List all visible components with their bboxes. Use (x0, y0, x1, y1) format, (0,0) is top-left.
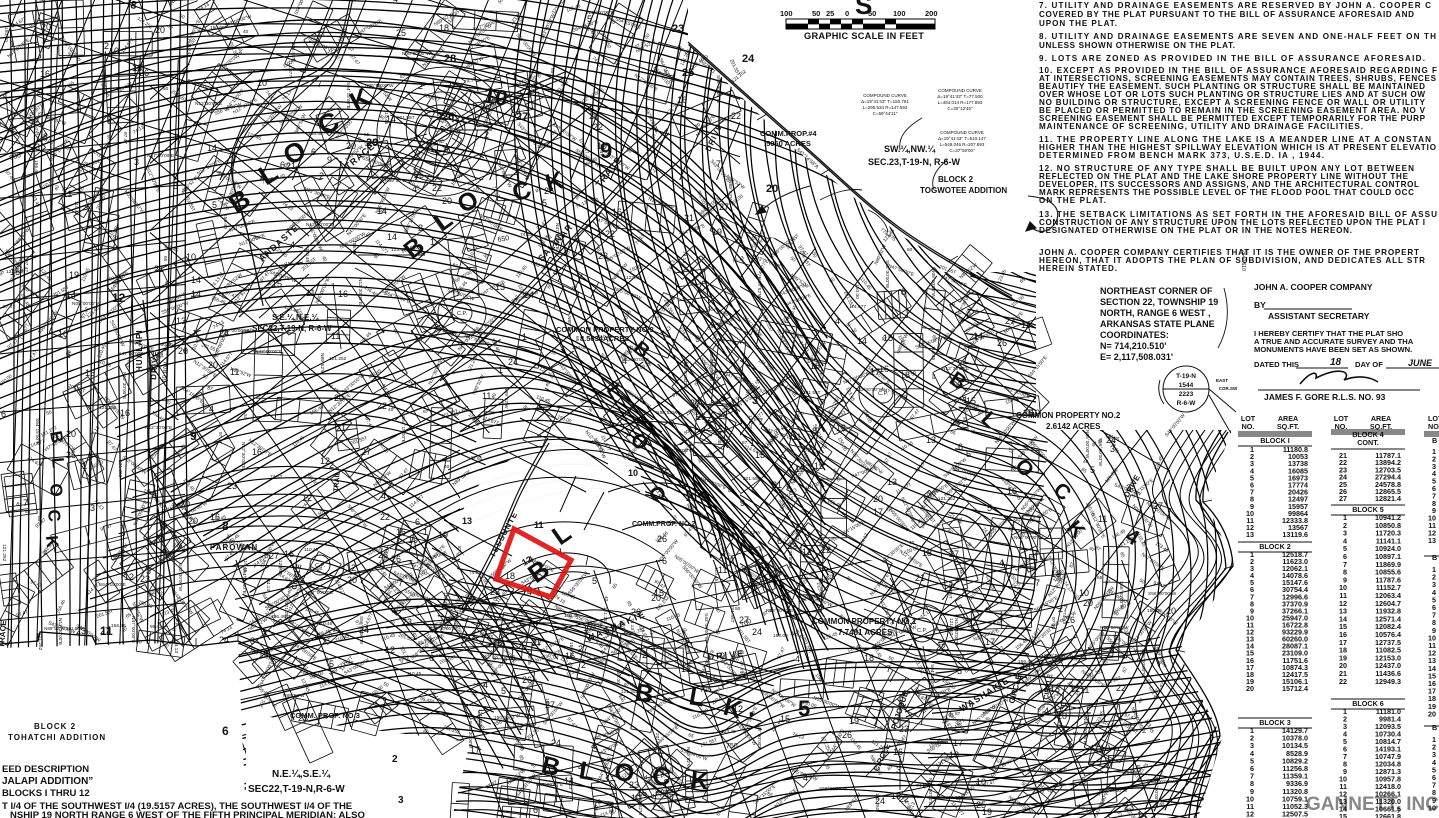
svg-text:97.47: 97.47 (1007, 441, 1013, 453)
svg-text:N12°30'00"E: N12°30'00"E (121, 372, 127, 399)
svg-text:5: 5 (1136, 764, 1141, 774)
svg-text:201.55T: 201.55T (743, 476, 761, 482)
svg-text:6: 6 (66, 350, 71, 360)
svg-text:8: 8 (162, 521, 167, 531)
svg-text:S56°00'00"W: S56°00'00"W (715, 75, 721, 104)
svg-text:20: 20 (690, 398, 700, 408)
svg-text:65: 65 (1097, 575, 1103, 581)
svg-text:HUALAPI: HUALAPI (135, 329, 144, 372)
svg-text:12821.4: 12821.4 (1375, 494, 1401, 503)
svg-text:N89°52'W: N89°52'W (656, 410, 678, 416)
svg-text:N47°00'00"E: N47°00'00"E (756, 723, 762, 750)
svg-text:12: 12 (124, 572, 134, 582)
svg-text:23: 23 (598, 251, 608, 261)
svg-text:65: 65 (25, 509, 31, 515)
svg-text:COMMON PROPERTY NO.2: COMMON PROPERTY NO.2 (1016, 411, 1121, 420)
svg-text:17: 17 (470, 745, 480, 755)
svg-text:25: 25 (396, 28, 406, 38)
svg-text:C.P.: C.P. (315, 563, 325, 569)
svg-text:18: 18 (922, 548, 932, 558)
svg-text:22: 22 (377, 401, 387, 411)
svg-text:24: 24 (359, 625, 369, 635)
svg-text:7: 7 (758, 417, 763, 427)
svg-text:156.46: 156.46 (537, 144, 552, 150)
svg-text:65: 65 (162, 256, 168, 262)
svg-text:2.6142 ACRES: 2.6142 ACRES (1046, 422, 1101, 431)
svg-text:4: 4 (553, 267, 558, 277)
svg-text:4: 4 (209, 404, 214, 414)
svg-text:N89°52'W: N89°52'W (756, 277, 762, 299)
svg-text:COMM.PROP.#4: COMM.PROP.#4 (760, 129, 817, 138)
svg-text:GANNETT, INC: GANNETT, INC (1306, 794, 1439, 815)
svg-text:5: 5 (165, 280, 170, 290)
svg-text:150.00: 150.00 (222, 214, 228, 229)
svg-text:4: 4 (60, 203, 65, 213)
svg-text:COMM.PROP. NO.2: COMM.PROP. NO.2 (632, 521, 695, 528)
svg-text:4: 4 (1109, 644, 1114, 654)
svg-text:N47°00'00"E: N47°00'00"E (536, 782, 563, 788)
svg-text:50: 50 (930, 374, 936, 380)
svg-text:COMPOUND CURVE: COMPOUND CURVE (863, 93, 907, 98)
svg-text:JUNE: JUNE (1408, 358, 1433, 368)
svg-text:750: 750 (726, 743, 738, 750)
svg-text:14: 14 (387, 232, 397, 242)
svg-text:12: 12 (681, 664, 691, 674)
svg-text:26: 26 (442, 111, 454, 123)
svg-text:4: 4 (483, 680, 488, 690)
svg-text:5: 5 (501, 686, 506, 696)
svg-text:121.252: 121.252 (477, 709, 483, 727)
svg-text:4: 4 (999, 558, 1004, 568)
svg-text:C.P.: C.P. (1042, 711, 1052, 717)
svg-text:121.252: 121.252 (747, 415, 753, 433)
svg-text:121.252: 121.252 (329, 356, 347, 362)
svg-text:15: 15 (755, 450, 765, 460)
svg-text:18: 18 (1330, 357, 1342, 368)
svg-text:10: 10 (109, 46, 119, 56)
svg-text:N05°00'00"W: N05°00'00"W (930, 269, 936, 298)
svg-text:19: 19 (438, 530, 448, 540)
svg-text:3: 3 (784, 315, 789, 325)
svg-text:9: 9 (107, 114, 112, 124)
svg-text:27: 27 (578, 644, 588, 654)
svg-text:N12°30'00"E: N12°30'00"E (145, 425, 172, 431)
svg-text:ARKANSAS STATE PLANE: ARKANSAS STATE PLANE (1100, 319, 1215, 329)
svg-text:22: 22 (1116, 683, 1126, 693)
svg-text:6: 6 (222, 724, 229, 738)
svg-text:725: 725 (700, 687, 712, 694)
svg-text:ON THE PLAT.: ON THE PLAT. (1039, 196, 1106, 205)
svg-text:97.47: 97.47 (624, 682, 636, 688)
svg-text:NORTHEAST CORNER OF: NORTHEAST CORNER OF (1100, 286, 1213, 296)
svg-text:1: 1 (522, 332, 527, 342)
svg-text:19: 19 (982, 807, 992, 817)
svg-text:N12°30'00"E: N12°30'00"E (357, 278, 363, 305)
svg-text:26: 26 (378, 550, 388, 560)
svg-text:20: 20 (41, 22, 51, 32)
svg-text:13: 13 (887, 477, 897, 487)
svg-text:16: 16 (338, 289, 348, 299)
svg-text:SEC22,T-19-N,R-6-W: SEC22,T-19-N,R-6-W (248, 784, 345, 795)
svg-text:17: 17 (953, 738, 963, 748)
svg-text:7: 7 (886, 664, 891, 674)
svg-text:DETERMINED FROM BENCH MARK 373: DETERMINED FROM BENCH MARK 373, U.S.E.D.… (1039, 151, 1324, 160)
svg-text:74.13: 74.13 (469, 570, 481, 576)
svg-text:16: 16 (210, 512, 220, 522)
svg-text:1: 1 (750, 438, 755, 448)
svg-text:JALAPI ADDITION”: JALAPI ADDITION” (2, 776, 93, 787)
svg-text:11: 11 (1098, 514, 1107, 524)
svg-text:18: 18 (1051, 569, 1061, 579)
svg-text:65: 65 (36, 516, 42, 522)
svg-text:N89°52'W: N89°52'W (503, 387, 509, 409)
svg-text:0: 0 (845, 9, 849, 18)
svg-text:COMPOUND CURVE: COMPOUND CURVE (938, 88, 982, 93)
svg-text:21: 21 (531, 637, 541, 647)
svg-text:13: 13 (462, 516, 472, 526)
svg-text:SEC22,T-19-N, R-6-W: SEC22,T-19-N, R-6-W (252, 324, 332, 333)
svg-text:3: 3 (398, 795, 404, 806)
svg-text:N47°00'00"E: N47°00'00"E (1040, 767, 1067, 773)
svg-text:10: 10 (58, 329, 68, 339)
svg-text:24: 24 (752, 627, 762, 637)
svg-text:97.47: 97.47 (122, 132, 128, 144)
svg-text:9: 9 (190, 429, 197, 443)
svg-text:121.252: 121.252 (948, 618, 954, 636)
svg-text:26: 26 (391, 554, 401, 564)
svg-text:6: 6 (958, 442, 963, 452)
svg-text:N89°52'W: N89°52'W (319, 353, 325, 375)
svg-text:N89°52'W: N89°52'W (1044, 653, 1066, 659)
svg-text:4: 4 (444, 143, 449, 153)
svg-text:27: 27 (516, 111, 528, 123)
svg-text:156.46: 156.46 (526, 650, 532, 665)
svg-text:8: 8 (222, 519, 229, 533)
svg-text:201.55T: 201.55T (803, 390, 821, 396)
svg-text:1: 1 (963, 395, 968, 405)
svg-text:150.00: 150.00 (854, 284, 860, 299)
svg-text:8: 8 (812, 426, 817, 436)
svg-text:12: 12 (302, 493, 312, 503)
svg-text:25: 25 (682, 67, 694, 79)
svg-text:SEC.23,T-19-N, R-6-W: SEC.23,T-19-N, R-6-W (868, 157, 961, 167)
svg-text:N47°00'00"E: N47°00'00"E (1082, 717, 1088, 744)
svg-text:99.434: 99.434 (150, 624, 164, 629)
svg-text:1: 1 (498, 365, 503, 375)
svg-text:5: 5 (592, 576, 597, 586)
svg-text:2: 2 (418, 223, 423, 233)
svg-text:40: 40 (1083, 459, 1089, 465)
svg-text:23: 23 (140, 574, 150, 584)
svg-text:10: 10 (619, 212, 629, 222)
svg-text:5: 5 (587, 14, 592, 24)
svg-text:27: 27 (949, 549, 959, 559)
svg-text:150.00: 150.00 (1147, 608, 1162, 614)
svg-text:S64°15'00"E: S64°15'00"E (929, 664, 935, 691)
svg-text:O: O (613, 758, 635, 788)
svg-text:24: 24 (875, 796, 885, 806)
svg-text:B: B (1432, 436, 1437, 445)
svg-text:26: 26 (657, 534, 667, 544)
svg-text:2: 2 (319, 171, 324, 181)
svg-text:2: 2 (392, 754, 398, 765)
svg-text:12949.3: 12949.3 (1375, 677, 1401, 686)
svg-text:N05°00'00"W: N05°00'00"W (1140, 649, 1146, 678)
svg-text:N89°52'W: N89°52'W (385, 178, 407, 184)
svg-text:N05°00'00"W: N05°00'00"W (1084, 430, 1090, 459)
svg-text:21: 21 (915, 573, 925, 583)
svg-text:N05°00'00"W: N05°00'00"W (72, 301, 101, 307)
svg-text:EAST: EAST (1216, 378, 1228, 383)
svg-text:5: 5 (987, 503, 992, 513)
svg-text:26: 26 (522, 675, 532, 685)
svg-text:110.45: 110.45 (304, 248, 310, 263)
svg-text:7: 7 (317, 79, 322, 89)
svg-text:11: 11 (100, 624, 113, 638)
svg-text:13119.6: 13119.6 (1282, 530, 1308, 539)
svg-text:20: 20 (66, 429, 76, 439)
svg-text:C.P.: C.P. (457, 311, 467, 317)
svg-text:E= 2,117,508.031': E= 2,117,508.031' (1100, 352, 1173, 362)
svg-text:97.47: 97.47 (3, 304, 15, 310)
svg-text:3: 3 (615, 57, 620, 67)
svg-text:8. UTILITY AND DRAINAGE EA: 8. UTILITY AND DRAINAGE EASEMENTS ARE SE… (1039, 32, 1436, 41)
svg-text:23: 23 (490, 587, 500, 597)
svg-text:COMMON PROPERTY NO.1: COMMON PROPERTY NO.1 (812, 617, 917, 626)
svg-text:5: 5 (212, 200, 217, 210)
svg-text:14: 14 (66, 290, 76, 300)
svg-text:5: 5 (798, 696, 810, 721)
svg-text:11: 11 (331, 331, 340, 341)
svg-text:19: 19 (408, 535, 418, 545)
svg-text:4: 4 (622, 356, 627, 366)
svg-text:17: 17 (985, 637, 995, 647)
svg-text:13: 13 (1428, 536, 1436, 545)
svg-text:C=37°50'00": C=37°50'00" (949, 148, 975, 153)
svg-text:20: 20 (1083, 598, 1093, 608)
svg-text:1: 1 (423, 527, 428, 537)
svg-text:16: 16 (836, 423, 846, 433)
svg-text:2: 2 (642, 650, 647, 660)
svg-text:50: 50 (477, 456, 483, 462)
svg-text:40: 40 (243, 29, 249, 35)
svg-text:50: 50 (961, 417, 967, 423)
svg-text:COR.SW: COR.SW (1219, 386, 1238, 391)
svg-text:7. UTILITY AND DRAINAGE EA: 7. UTILITY AND DRAINAGE EASEMENTS ARE RE… (1039, 1, 1431, 10)
svg-text:7: 7 (778, 414, 783, 424)
svg-text:8.5634ACRES: 8.5634ACRES (580, 334, 629, 343)
svg-text:N05°00'00"W: N05°00'00"W (365, 83, 394, 89)
svg-text:12: 12 (346, 563, 356, 573)
svg-text:23: 23 (227, 481, 237, 491)
svg-text:110.45: 110.45 (304, 547, 319, 553)
svg-text:L=549.046 R=207.893: L=549.046 R=207.893 (940, 142, 985, 147)
svg-text:DESIGNATED OTHERWISE ON THE PL: DESIGNATED OTHERWISE ON THE PLAT OR IN T… (1039, 226, 1352, 235)
svg-text:5: 5 (591, 29, 596, 39)
svg-text:16: 16 (284, 549, 294, 559)
svg-text:18: 18 (505, 571, 515, 581)
svg-text:201.55T: 201.55T (654, 733, 660, 751)
svg-text:L: L (48, 457, 68, 469)
svg-text:4: 4 (393, 0, 398, 4)
svg-text:MAINTENANCE OF SCREENING, UTIL: MAINTENANCE OF SCREENING, UTILITY AND DR… (1039, 122, 1363, 131)
svg-text:150.00: 150.00 (210, 25, 225, 31)
svg-text:11: 11 (306, 288, 315, 298)
svg-text:27: 27 (1058, 604, 1068, 614)
svg-text:10: 10 (257, 78, 267, 88)
svg-text:110.45: 110.45 (318, 621, 333, 627)
svg-text:5: 5 (329, 659, 334, 669)
svg-text:C.P.: C.P. (878, 391, 888, 397)
svg-text:6: 6 (415, 517, 420, 527)
svg-text:7: 7 (1035, 578, 1040, 588)
svg-text:O: O (46, 483, 66, 498)
svg-text:97.47: 97.47 (105, 135, 111, 147)
svg-text:100: 100 (893, 9, 906, 18)
svg-text:10: 10 (481, 82, 509, 111)
svg-text:N47°00'00"E: N47°00'00"E (255, 349, 282, 355)
svg-text:5: 5 (542, 198, 547, 208)
svg-text:18: 18 (439, 23, 449, 33)
svg-text:14: 14 (1137, 810, 1147, 818)
svg-text:1544: 1544 (1179, 382, 1194, 389)
svg-text:DATED THIS: DATED THIS (1254, 360, 1299, 369)
svg-text:1: 1 (10, 39, 15, 49)
svg-text:19: 19 (814, 461, 824, 471)
svg-text:22: 22 (380, 512, 390, 522)
svg-text:22: 22 (731, 111, 741, 121)
svg-text:Δ=19°41'43" T=77.500: Δ=19°41'43" T=77.500 (937, 94, 983, 99)
svg-text:87: 87 (423, 409, 429, 415)
svg-text:40: 40 (909, 540, 915, 546)
svg-text:6: 6 (311, 147, 316, 157)
svg-text:6: 6 (1, 409, 6, 419)
svg-text:20: 20 (180, 499, 190, 509)
svg-text:HEREIN STATED.: HEREIN STATED. (1039, 264, 1117, 273)
svg-text:65: 65 (436, 653, 442, 659)
svg-text:.5050 ACRES: .5050 ACRES (764, 139, 811, 148)
svg-text:CONT.: CONT. (1357, 438, 1379, 447)
svg-text:BLOCK 2: BLOCK 2 (938, 175, 974, 184)
svg-text:C.P.: C.P. (435, 128, 445, 134)
svg-text:C.P.: C.P. (917, 628, 927, 634)
svg-text:7: 7 (716, 159, 721, 169)
svg-text:6: 6 (662, 556, 667, 566)
svg-text:50: 50 (1080, 654, 1086, 660)
svg-text:17: 17 (873, 507, 883, 517)
svg-text:50: 50 (163, 86, 169, 92)
svg-text:87: 87 (955, 711, 961, 717)
svg-text:GRAPHIC SCALE IN FEET: GRAPHIC SCALE IN FEET (804, 31, 924, 41)
svg-text:SQ.FT.: SQ.FT. (1277, 422, 1299, 431)
svg-text:24: 24 (742, 53, 755, 65)
svg-text:11: 11 (482, 391, 491, 401)
svg-text:74.13: 74.13 (270, 474, 282, 480)
svg-text:121.252: 121.252 (99, 405, 117, 411)
svg-text:16: 16 (252, 447, 262, 457)
svg-text:11: 11 (63, 189, 72, 199)
svg-text:26: 26 (589, 111, 599, 121)
svg-text:S43°00'00"W: S43°00'00"W (703, 613, 709, 642)
svg-text:150.00: 150.00 (572, 345, 587, 351)
svg-text:18: 18 (949, 750, 959, 760)
svg-text:27: 27 (1005, 316, 1015, 326)
svg-text:3: 3 (752, 395, 758, 407)
svg-text:50: 50 (726, 487, 732, 493)
svg-text:150.00: 150.00 (158, 342, 173, 348)
svg-text:123.45: 123.45 (716, 430, 722, 445)
svg-text:50: 50 (812, 9, 820, 18)
svg-text:6: 6 (429, 653, 434, 663)
svg-text:20: 20 (1428, 709, 1436, 718)
svg-text:27: 27 (361, 447, 371, 457)
svg-text:65: 65 (42, 550, 48, 556)
svg-text:40: 40 (444, 464, 450, 470)
svg-text:S43°00'00"W: S43°00'00"W (177, 563, 183, 592)
svg-text:100: 100 (780, 9, 793, 18)
svg-text:50: 50 (559, 77, 565, 83)
svg-text:13: 13 (926, 435, 936, 445)
svg-text:16: 16 (396, 527, 406, 537)
svg-text:26: 26 (997, 338, 1007, 348)
svg-text:R-6-W: R-6-W (1177, 400, 1197, 407)
svg-text:74.13: 74.13 (265, 579, 271, 591)
svg-text:156.46: 156.46 (285, 261, 300, 267)
svg-text:5: 5 (966, 449, 971, 459)
svg-text:11: 11 (718, 565, 727, 575)
svg-text:25: 25 (826, 9, 834, 18)
svg-text:10: 10 (1100, 743, 1110, 753)
svg-text:N= 714,210.510': N= 714,210.510' (1100, 341, 1166, 351)
svg-text:87: 87 (400, 74, 406, 80)
svg-text:2: 2 (581, 660, 586, 670)
svg-text:N.E.¼,S.E.¼: N.E.¼,S.E.¼ (272, 769, 330, 780)
svg-text:3: 3 (896, 765, 901, 775)
svg-text:14: 14 (207, 143, 217, 153)
svg-text:N05°00'00"W: N05°00'00"W (402, 51, 431, 57)
svg-text:97.47: 97.47 (217, 432, 223, 444)
svg-text:5: 5 (684, 361, 689, 371)
svg-text:26: 26 (178, 346, 188, 356)
svg-text:N89°52'W: N89°52'W (283, 693, 305, 699)
svg-text:87: 87 (471, 455, 477, 461)
svg-text:K: K (689, 766, 709, 795)
svg-text:4: 4 (835, 316, 840, 326)
svg-text:9. LOTS ARE ZONED AS PROVI: 9. LOTS ARE ZONED AS PROVIDED IN THE BIL… (1039, 54, 1425, 63)
svg-text:8: 8 (173, 181, 178, 191)
svg-text:13: 13 (495, 282, 505, 292)
svg-text:9: 9 (740, 498, 745, 508)
svg-text:S56°00'00"W: S56°00'00"W (819, 786, 848, 792)
svg-text:COMMON PROPERTY NO.3: COMMON PROPERTY NO.3 (556, 325, 654, 334)
svg-text:15: 15 (708, 674, 718, 684)
svg-text:12507.5: 12507.5 (1282, 810, 1308, 818)
svg-text:C: C (44, 509, 64, 523)
svg-text:27: 27 (545, 700, 555, 710)
svg-text:17: 17 (133, 63, 143, 73)
svg-text:23: 23 (1124, 802, 1134, 812)
svg-text:14: 14 (564, 776, 574, 786)
svg-text:9: 9 (327, 155, 332, 165)
svg-text:27: 27 (1339, 494, 1347, 503)
svg-text:16: 16 (677, 95, 687, 105)
svg-text:23: 23 (30, 142, 40, 152)
svg-text:12: 12 (1246, 810, 1254, 818)
svg-text:21: 21 (684, 213, 694, 223)
svg-text:12: 12 (802, 547, 812, 557)
svg-text:N12°30'00"E: N12°30'00"E (306, 222, 333, 228)
svg-text:12: 12 (385, 645, 395, 655)
